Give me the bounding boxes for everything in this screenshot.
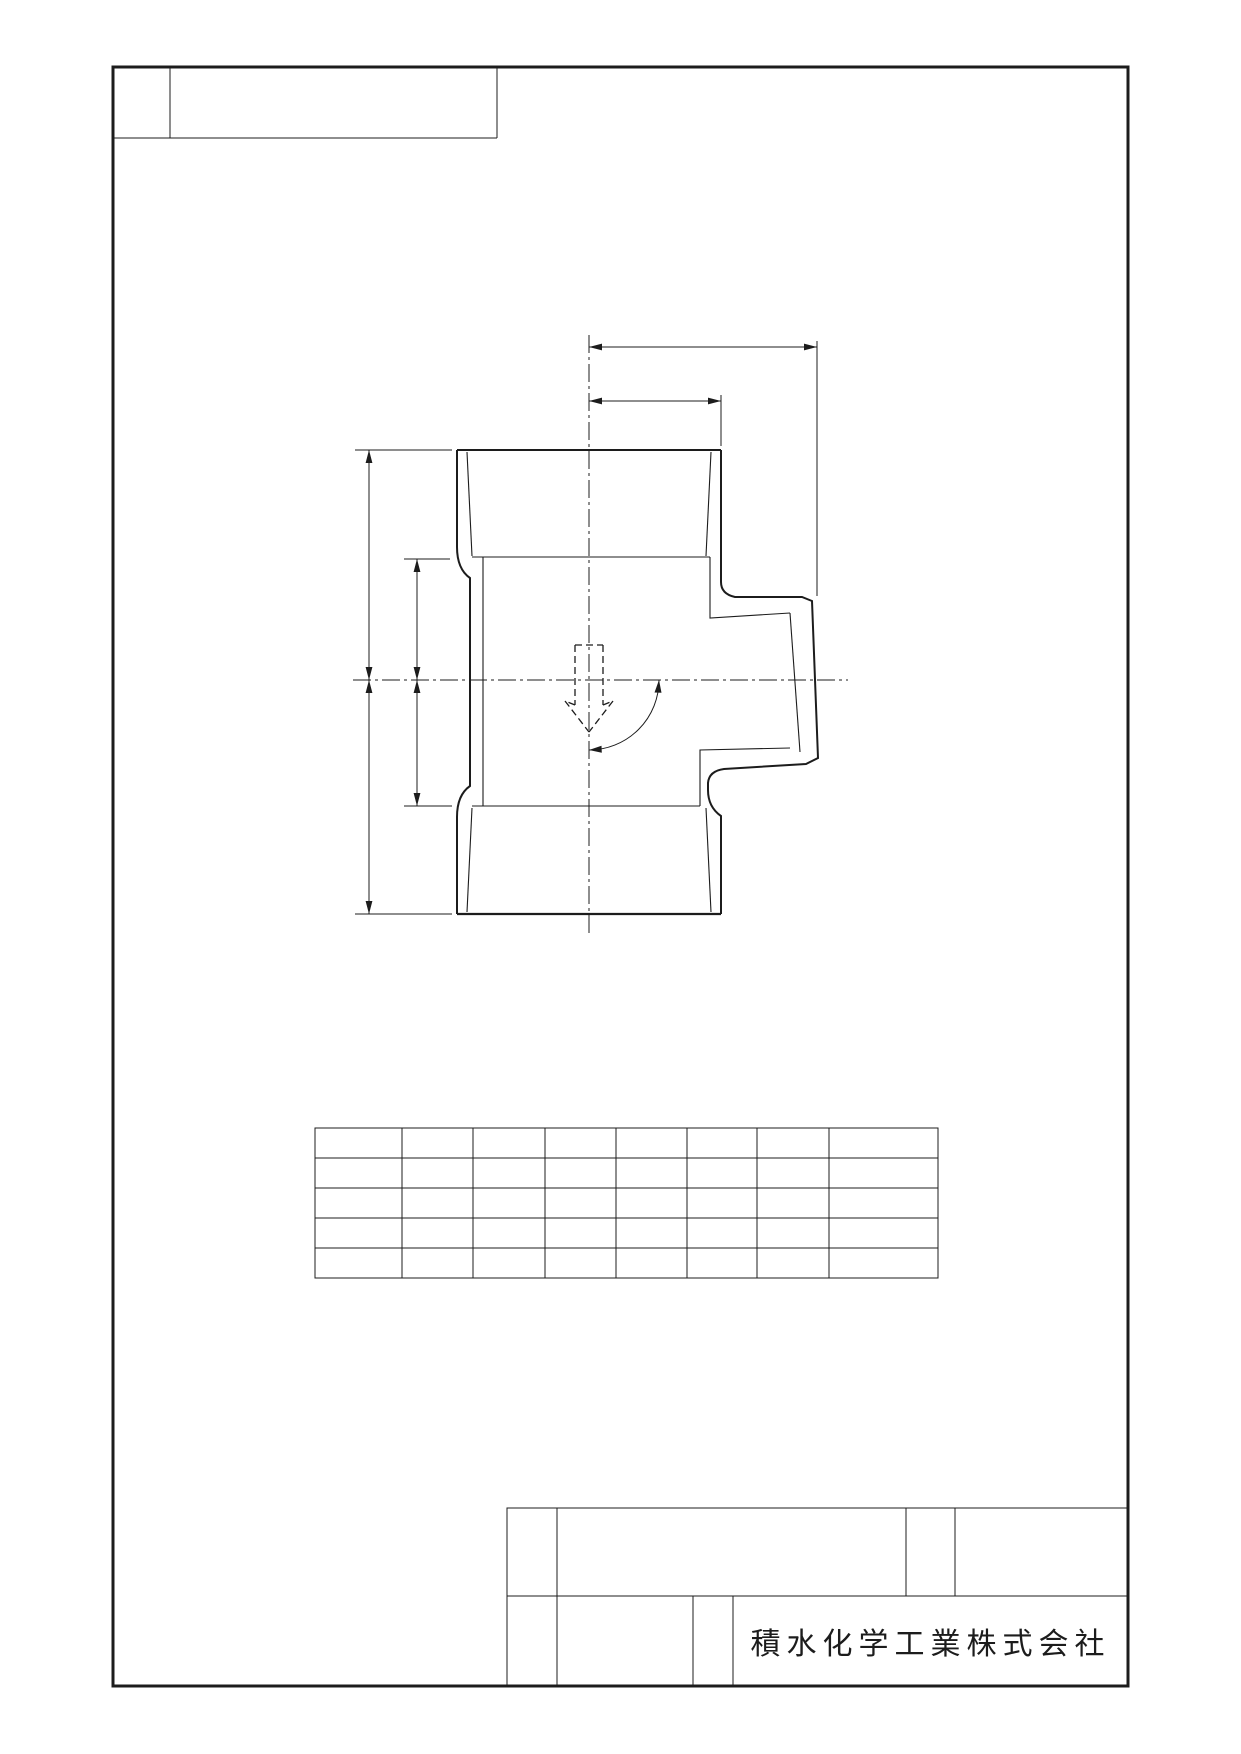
fitting-inner-lines [467,452,800,912]
drawing-frame [113,67,1128,1686]
angle-arc-arrowheads [589,680,662,753]
angle-arc-dimension [589,680,659,750]
extension-lines [355,341,817,914]
spec-table-column-lines [402,1128,829,1278]
spec-table-row-lines [315,1158,938,1248]
drawing-canvas [0,0,1241,1754]
tee-fitting-view [353,335,848,937]
revision-box [113,67,497,138]
dimension-arrowheads [366,344,817,914]
fitting-outline [457,450,818,914]
drawing-sheet: 積水化学工業株式会社 [0,0,1241,1754]
company-name: 積水化学工業株式会社 [733,1598,1128,1684]
spec-table [315,1128,938,1278]
